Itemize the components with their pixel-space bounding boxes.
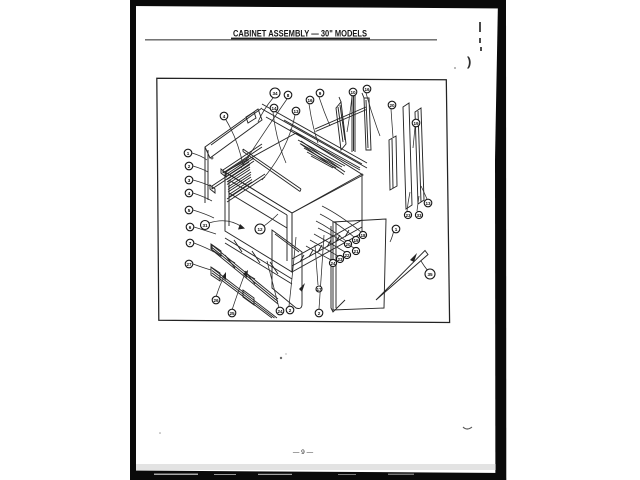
svg-text:6: 6 [189,225,192,230]
svg-text:23: 23 [405,213,411,218]
svg-text:2: 2 [289,308,292,313]
svg-text:22: 22 [344,253,350,258]
svg-text:7: 7 [189,241,192,246]
svg-text:8: 8 [287,93,290,98]
svg-text:): ) [467,54,471,69]
svg-text:35: 35 [427,272,433,277]
svg-text:1: 1 [187,151,190,156]
svg-text:— 9 —: — 9 — [293,449,314,456]
svg-text:16: 16 [364,87,370,92]
svg-text:1: 1 [395,227,398,232]
svg-text:9: 9 [319,91,322,96]
svg-text:19: 19 [353,238,359,243]
svg-text:25: 25 [229,311,235,316]
svg-text:5: 5 [188,208,191,213]
svg-text:34: 34 [272,91,278,96]
svg-text:31: 31 [202,223,208,228]
svg-text:33: 33 [416,213,422,218]
svg-text:14: 14 [271,106,277,111]
svg-text:23: 23 [337,257,343,262]
svg-text:20: 20 [389,103,395,108]
svg-text:20: 20 [345,242,351,247]
svg-text:13: 13 [425,201,431,206]
svg-text:24: 24 [330,261,336,266]
svg-text:12: 12 [257,227,263,232]
svg-text:CABINET ASSEMBLY — 30" MODELS: CABINET ASSEMBLY — 30" MODELS [233,29,367,39]
svg-text:18: 18 [360,233,366,238]
svg-text:27: 27 [186,262,192,267]
svg-text:19: 19 [413,121,419,126]
svg-text:16: 16 [307,98,313,103]
svg-text:4: 4 [188,191,191,196]
svg-text:3: 3 [188,178,191,183]
svg-text:10: 10 [350,90,356,95]
svg-text:2: 2 [188,164,191,169]
svg-text:13: 13 [293,109,299,114]
svg-text:21: 21 [353,249,359,254]
svg-text:17: 17 [316,287,322,292]
svg-text:26: 26 [213,298,219,303]
svg-text:24: 24 [277,309,283,314]
svg-text:2: 2 [318,311,321,316]
svg-text:4: 4 [223,114,226,119]
